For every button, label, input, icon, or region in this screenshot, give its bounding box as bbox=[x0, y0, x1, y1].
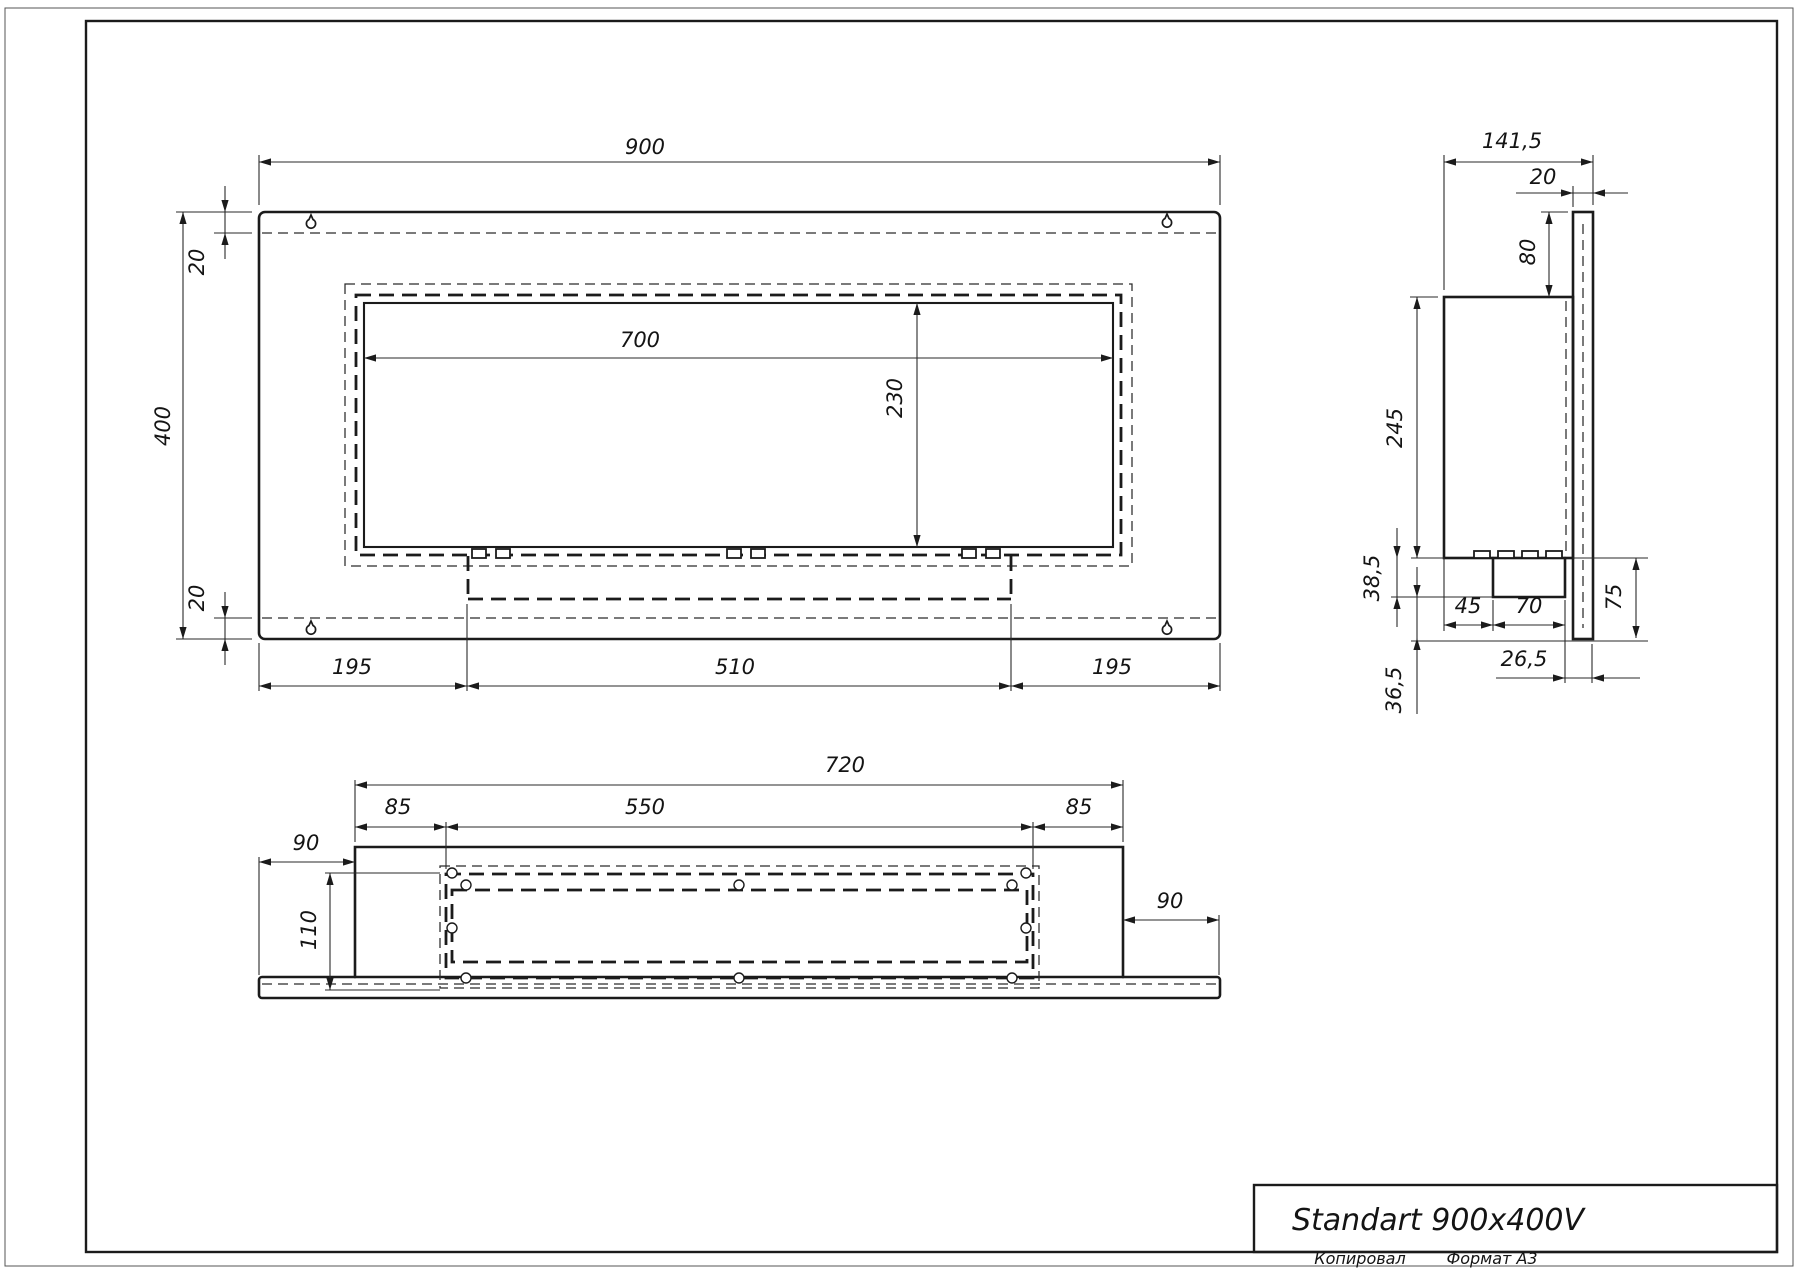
dimension: 195 bbox=[259, 655, 467, 690]
dimension: 700 bbox=[364, 328, 1113, 362]
dimension: 70 bbox=[1493, 594, 1565, 629]
keyhole-icon bbox=[1162, 214, 1171, 227]
keyhole-icon bbox=[306, 215, 315, 228]
dim-label-mount-plate-thickness: 20 bbox=[1530, 165, 1557, 189]
fastener-holes bbox=[447, 868, 1031, 983]
dim-label-overall-width: 900 bbox=[625, 135, 665, 159]
firebox-opening bbox=[364, 303, 1113, 547]
dim-label-opening-width: 550 bbox=[625, 795, 665, 819]
burner-bracket-hidden bbox=[468, 556, 1011, 599]
dim-label-plate-lower-height: 75 bbox=[1602, 584, 1626, 611]
dimension: 510 bbox=[467, 655, 1011, 690]
dimension: 85 bbox=[1033, 795, 1123, 831]
dim-label-margin-left: 85 bbox=[385, 795, 412, 819]
burner-tab-row bbox=[472, 549, 1000, 558]
dim-label-seg-45: 45 bbox=[1455, 594, 1482, 618]
dim-label-top-offset: 20 bbox=[185, 249, 209, 276]
title-block: Standart 900x400V Копировал Формат А3 bbox=[1254, 1185, 1777, 1268]
inner-frame bbox=[86, 21, 1777, 1252]
keyhole-icon bbox=[1162, 621, 1171, 634]
drawing-sheet: 9004002020700230195510195141,5208024538,… bbox=[0, 0, 1800, 1273]
dimension: 26,5 bbox=[1496, 647, 1640, 682]
front-extension-lines bbox=[176, 155, 1220, 691]
dim-label-body-height: 245 bbox=[1383, 408, 1407, 448]
dim-label-seg-70: 70 bbox=[1516, 594, 1543, 618]
front-panel-outline bbox=[259, 212, 1220, 639]
mounting-keyhole-icons bbox=[306, 214, 1171, 634]
dimension: 20 bbox=[185, 585, 229, 665]
dimension: 900 bbox=[259, 135, 1220, 166]
dim-label-bottom-offset: 20 bbox=[185, 585, 209, 612]
stamp-format-label: Формат А3 bbox=[1446, 1249, 1537, 1268]
window-frame-hidden-outer bbox=[345, 284, 1132, 566]
dimensions: 9004002020700230195510195141,5208024538,… bbox=[151, 129, 1640, 990]
dimension: 195 bbox=[1011, 655, 1220, 690]
dimension: 245 bbox=[1383, 297, 1421, 558]
dimension: 110 bbox=[297, 873, 334, 990]
dim-label-opening-height: 230 bbox=[883, 378, 907, 418]
dimension: 38,5 bbox=[1360, 528, 1401, 627]
dimension: 400 bbox=[151, 212, 187, 639]
dim-label-bottom-center: 510 bbox=[715, 655, 755, 679]
window-frame-hidden-inner bbox=[356, 295, 1121, 555]
dimension: 45 bbox=[1444, 594, 1493, 629]
dim-label-bottom-left: 195 bbox=[332, 655, 372, 679]
dim-label-top-drop: 80 bbox=[1516, 239, 1540, 266]
burner-tray-profile bbox=[1493, 558, 1565, 597]
dim-label-bottom-right: 195 bbox=[1092, 655, 1132, 679]
dim-label-depth: 110 bbox=[297, 910, 321, 950]
dim-label-opening-width: 700 bbox=[620, 328, 660, 352]
paper-edge bbox=[5, 8, 1793, 1266]
dim-label-overall-height: 400 bbox=[151, 406, 175, 446]
dim-label-ext-right: 90 bbox=[1157, 889, 1184, 913]
technical-drawing: 9004002020700230195510195141,5208024538,… bbox=[0, 0, 1800, 1273]
panel-fold-hidden-lines bbox=[262, 233, 1217, 618]
dim-label-margin-right: 85 bbox=[1066, 795, 1093, 819]
dimension: 141,5 bbox=[1444, 129, 1593, 166]
dimension: 90 bbox=[1123, 889, 1219, 924]
plan-hidden-inner bbox=[452, 890, 1027, 962]
dimension: 720 bbox=[355, 753, 1123, 789]
dimension: 90 bbox=[259, 831, 355, 866]
dim-label-tray-height: 38,5 bbox=[1360, 555, 1384, 602]
keyhole-icon bbox=[306, 621, 315, 634]
drawing-title: Standart 900x400V bbox=[1292, 1203, 1587, 1238]
dim-label-ext-left: 90 bbox=[293, 831, 320, 855]
dimension: 75 bbox=[1602, 558, 1640, 638]
dimension: 20 bbox=[185, 186, 229, 275]
dim-label-overall-depth: 141,5 bbox=[1482, 129, 1542, 153]
stamp-copied-label: Копировал bbox=[1314, 1249, 1405, 1268]
dimension: 85 bbox=[355, 795, 446, 831]
side-body-outline bbox=[1444, 297, 1573, 558]
dim-label-back-offset: 26,5 bbox=[1501, 647, 1548, 671]
drawing-frame bbox=[5, 8, 1793, 1266]
dimension: 80 bbox=[1516, 212, 1553, 297]
dim-label-body-width: 720 bbox=[825, 753, 865, 777]
front-view bbox=[176, 155, 1220, 691]
dimension: 550 bbox=[446, 795, 1033, 831]
dimension: 230 bbox=[883, 303, 921, 547]
dim-label-tray-bottom-offset: 36,5 bbox=[1382, 667, 1406, 714]
dimension: 20 bbox=[1516, 165, 1628, 197]
